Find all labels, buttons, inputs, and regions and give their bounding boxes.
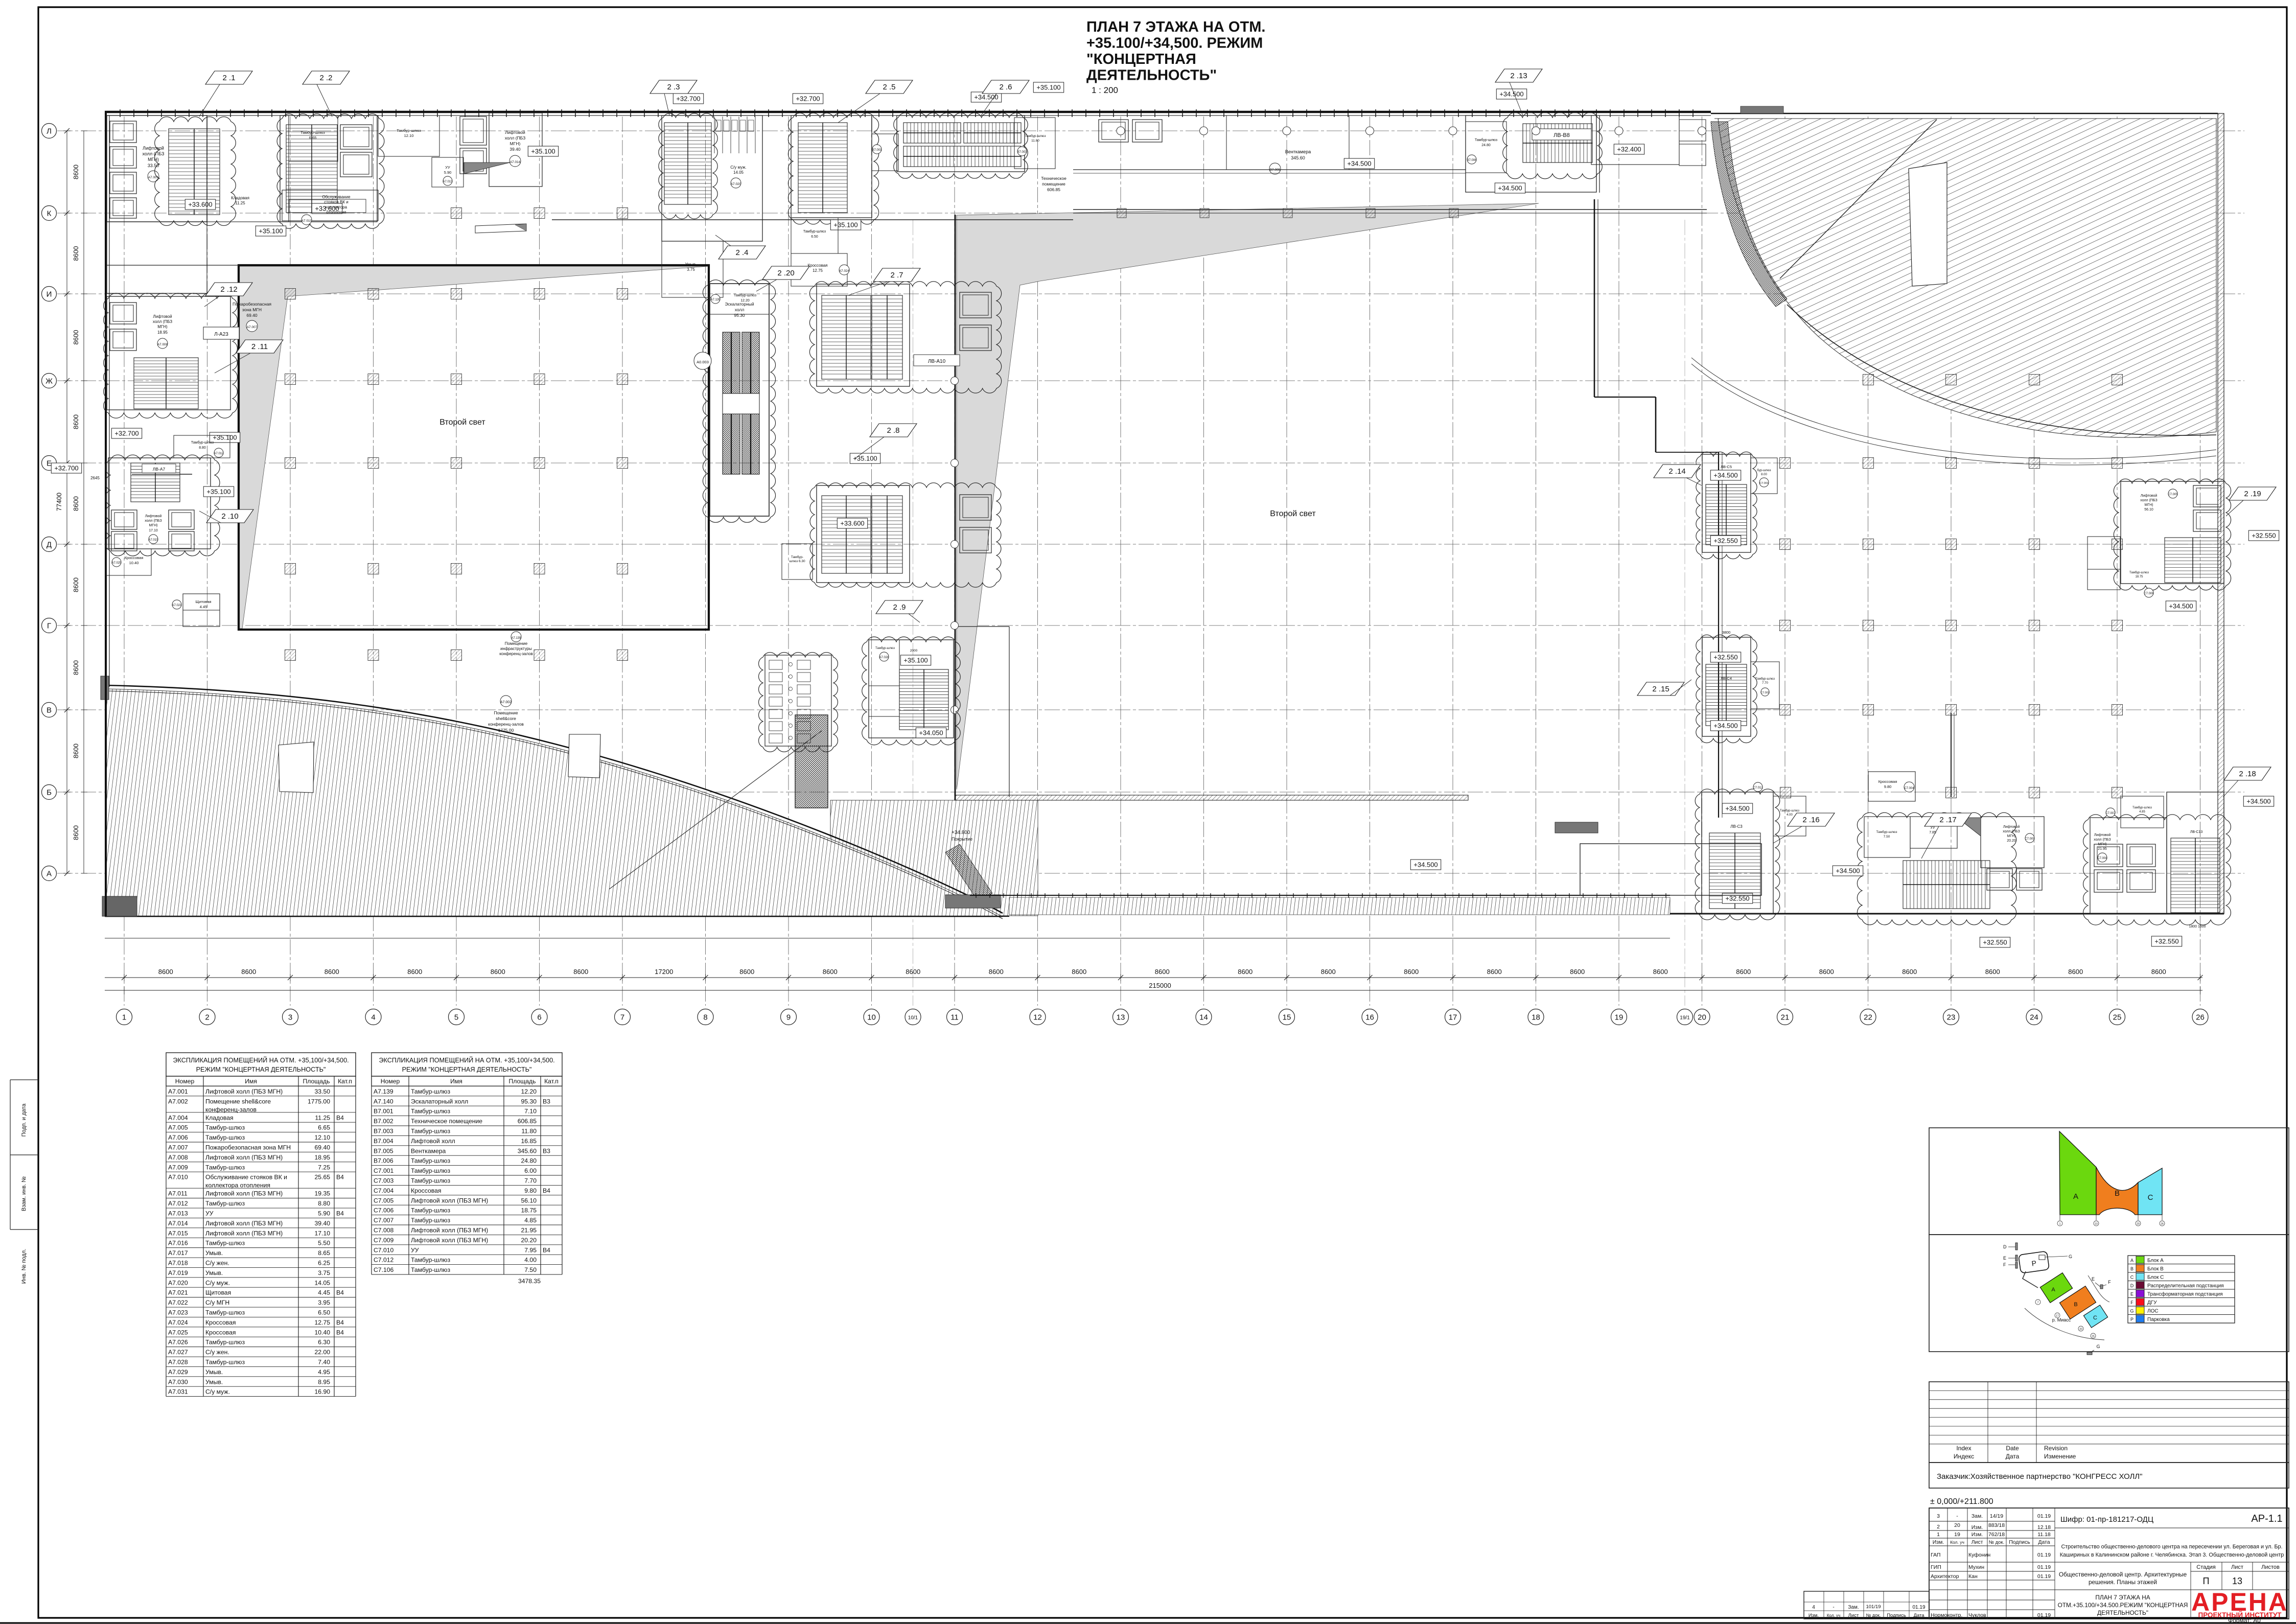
svg-text:А7.029: А7.029 [168, 1368, 188, 1376]
svg-text:E: E [2130, 1292, 2133, 1297]
svg-text:А7.005: А7.005 [168, 1124, 188, 1131]
svg-text:+33.600: +33.600 [840, 520, 864, 527]
svg-text:А7.024: А7.024 [839, 269, 850, 273]
svg-text:В7.006: В7.006 [374, 1157, 393, 1165]
svg-text:9: 9 [786, 1013, 791, 1022]
svg-text:20: 20 [1954, 1522, 1960, 1528]
svg-text:УУ: УУ [205, 1210, 214, 1217]
svg-text:+34.500: +34.500 [1713, 472, 1737, 479]
svg-text:2 .1: 2 .1 [222, 74, 235, 82]
svg-text:В3: В3 [543, 1147, 550, 1154]
svg-text:10: 10 [867, 1013, 876, 1022]
svg-text:А7.014: А7.014 [510, 160, 521, 164]
svg-text:решения. Планы этажей: решения. Планы этажей [2089, 1579, 2157, 1586]
svg-text:В7.004: В7.004 [374, 1138, 393, 1145]
svg-text:1775.00: 1775.00 [498, 728, 514, 733]
svg-text:+32.550: +32.550 [1713, 654, 1737, 661]
svg-text:Лифтовой холл (ПБЗ МГН): Лифтовой холл (ПБЗ МГН) [205, 1220, 283, 1227]
svg-text:7.70: 7.70 [524, 1177, 537, 1185]
svg-text:А7.002: А7.002 [500, 701, 512, 704]
svg-text:Тамбур-шлюз: Тамбур-шлюз [1475, 138, 1497, 142]
svg-text:8600: 8600 [158, 968, 173, 976]
svg-text:Строительство общественно-дело: Строительство общественно-делового центр… [2061, 1544, 2282, 1550]
svg-text:Кан: Кан [1968, 1573, 1978, 1580]
svg-text:ЛОС: ЛОС [2147, 1309, 2159, 1314]
svg-text:Кроссовая: Кроссовая [205, 1319, 236, 1326]
svg-text:Тамбур-шлюз: Тамбур-шлюз [411, 1257, 450, 1264]
svg-text:Тамбур-шлюз: Тамбур-шлюз [205, 1200, 245, 1207]
svg-text:А7.140: А7.140 [374, 1098, 393, 1105]
svg-text:4.45: 4.45 [200, 605, 207, 609]
svg-text:С/у жен.: С/у жен. [205, 1260, 229, 1267]
svg-text:1 : 200: 1 : 200 [1092, 85, 1118, 95]
svg-text:Лист: Лист [1848, 1613, 1859, 1618]
svg-text:6.30: 6.30 [318, 1339, 330, 1346]
svg-text:Index: Index [1956, 1445, 1971, 1452]
svg-text:конференц-залов: конференц-залов [499, 652, 533, 656]
svg-text:Date: Date [2006, 1445, 2019, 1452]
svg-text:Пожаробезопасная зона МГН: Пожаробезопасная зона МГН [205, 1144, 291, 1151]
svg-text:Тамбур-шлюз: Тамбур-шлюз [875, 647, 895, 650]
svg-text:2 .7: 2 .7 [890, 271, 903, 280]
svg-text:И: И [47, 290, 52, 299]
svg-text:С7.009: С7.009 [2025, 838, 2035, 841]
svg-text:ЛВ-А7: ЛВ-А7 [153, 467, 166, 472]
svg-text:Подпись: Подпись [2009, 1539, 2030, 1545]
svg-text:В7.006: В7.006 [1467, 159, 1477, 162]
svg-text:E: E [2092, 1277, 2095, 1282]
svg-text:B: B [2130, 1266, 2133, 1271]
svg-text:А7.020: А7.020 [168, 1279, 188, 1286]
svg-text:В4: В4 [336, 1329, 344, 1336]
svg-text:А7.014: А7.014 [168, 1220, 188, 1227]
svg-text:Умыв.: Умыв. [205, 1368, 223, 1376]
svg-text:С7.001: С7.001 [1759, 482, 1769, 485]
svg-text:12.10: 12.10 [315, 1134, 331, 1141]
svg-text:345.60: 345.60 [518, 1147, 537, 1154]
svg-text:2 .10: 2 .10 [221, 512, 238, 521]
svg-text:Кладовая: Кладовая [205, 1114, 234, 1121]
svg-text:Дата: Дата [2006, 1453, 2020, 1460]
svg-text:конференц-залов: конференц-залов [205, 1106, 257, 1113]
svg-text:Лифтовой холл (ПБЗ МГН): Лифтовой холл (ПБЗ МГН) [205, 1154, 283, 1161]
svg-text:А7.021: А7.021 [168, 1289, 188, 1296]
svg-text:8: 8 [703, 1013, 707, 1022]
svg-text:Лифтовой холл (ПБЗ МГН): Лифтовой холл (ПБЗ МГН) [205, 1229, 283, 1237]
svg-text:Б: Б [47, 788, 52, 797]
svg-text:33.50: 33.50 [315, 1088, 331, 1095]
svg-text:shell&core: shell&core [496, 716, 516, 721]
svg-text:Тамбур-шлюз: Тамбур-шлюз [411, 1167, 450, 1174]
svg-text:Л-А23: Л-А23 [214, 332, 228, 337]
svg-text:Кладовая: Кладовая [231, 196, 249, 200]
svg-text:+34.500: +34.500 [1498, 184, 1522, 192]
svg-text:С7.008: С7.008 [2097, 857, 2107, 860]
svg-text:4.00: 4.00 [524, 1257, 537, 1264]
svg-text:ЭКСПЛИКАЦИЯ ПОМЕЩЕНИЙ НА ОТМ.: ЭКСПЛИКАЦИЯ ПОМЕЩЕНИЙ НА ОТМ. +35,100/+3… [173, 1056, 349, 1064]
svg-text:69.40: 69.40 [246, 313, 258, 318]
svg-text:Кат.п: Кат.п [338, 1078, 352, 1085]
svg-text:Изм.: Изм. [1933, 1539, 1944, 1545]
svg-text:17.10: 17.10 [149, 529, 158, 532]
svg-text:В7.005: В7.005 [374, 1147, 393, 1154]
svg-text:1: 1 [122, 1013, 126, 1022]
svg-text:+34.500: +34.500 [2246, 798, 2270, 805]
svg-text:Щитовая: Щитовая [196, 599, 212, 604]
svg-text:А7.010: А7.010 [302, 219, 312, 223]
svg-text:12.75: 12.75 [813, 268, 823, 273]
svg-text:8600: 8600 [1985, 968, 2000, 976]
svg-text:+34.500: +34.500 [2169, 602, 2193, 610]
svg-text:22.00: 22.00 [315, 1349, 331, 1356]
svg-text:Нормоконтр.: Нормоконтр. [1931, 1612, 1962, 1618]
svg-text:2 .8: 2 .8 [887, 426, 899, 435]
svg-text:56.10: 56.10 [521, 1197, 537, 1204]
svg-text:коллектора: коллектора [326, 205, 347, 210]
svg-text:9.80: 9.80 [524, 1187, 537, 1194]
svg-text:Щитовая: Щитовая [205, 1289, 231, 1296]
svg-text:2000: 2000 [910, 649, 918, 653]
svg-text:Пожаробезопасная: Пожаробезопасная [233, 301, 271, 307]
svg-text:ЛВ-С4: ЛВ-С4 [1721, 676, 1732, 681]
svg-text:7: 7 [620, 1013, 624, 1022]
svg-text:Кашириных в Калининском районе: Кашириных в Калининском районе г. Челяби… [2060, 1552, 2284, 1558]
svg-text:Лифтовой: Лифтовой [505, 130, 525, 135]
svg-text:Шифр: 01-пр-181217-ОДЦ: Шифр: 01-пр-181217-ОДЦ [2060, 1515, 2153, 1524]
svg-text:+32.550: +32.550 [1713, 537, 1737, 545]
svg-text:17.10: 17.10 [315, 1229, 331, 1237]
svg-text:А7.015: А7.015 [168, 1229, 188, 1237]
svg-text:холл (ПБЗ: холл (ПБЗ [143, 151, 165, 156]
svg-text:E: E [2003, 1256, 2006, 1261]
svg-text:39.40: 39.40 [315, 1220, 331, 1227]
svg-text:С7.007: С7.007 [2105, 812, 2116, 815]
svg-text:С7.003: С7.003 [1760, 691, 1770, 694]
svg-text:Тамбур-шлюз: Тамбур-шлюз [411, 1157, 450, 1165]
svg-text:С7.007: С7.007 [374, 1217, 394, 1224]
svg-text:Лифтовой холл (ПБЗ МГН): Лифтовой холл (ПБЗ МГН) [411, 1197, 488, 1204]
svg-text:А7.002: А7.002 [168, 1098, 188, 1105]
svg-text:А7.001: А7.001 [148, 176, 159, 179]
svg-text:Тамбур-шлюз: Тамбур-шлюз [1025, 134, 1046, 138]
svg-text:A: A [2051, 1287, 2055, 1293]
svg-text:Лифтовой: Лифтовой [153, 314, 172, 319]
svg-text:ГАП: ГАП [1931, 1552, 1940, 1558]
svg-text:+34.500: +34.500 [1713, 722, 1737, 730]
svg-text:8600: 8600 [1404, 968, 1419, 976]
svg-text:Умыв.: Умыв. [205, 1269, 223, 1277]
svg-text:8600: 8600 [72, 825, 80, 840]
svg-text:01.19: 01.19 [2037, 1612, 2051, 1618]
svg-text:39.40: 39.40 [509, 147, 521, 152]
svg-text:шлюз 6.30: шлюз 6.30 [789, 560, 805, 563]
svg-text:2 .18: 2 .18 [2239, 770, 2256, 778]
svg-text:С7.012: С7.012 [374, 1257, 394, 1264]
svg-text:ГИП: ГИП [1931, 1564, 1941, 1570]
svg-text:F: F [2108, 1280, 2111, 1285]
svg-text:+35.100: +35.100 [903, 657, 927, 664]
svg-text:Кроссовая: Кроссовая [807, 263, 827, 268]
svg-text:14: 14 [1199, 1013, 1208, 1022]
svg-text:A: A [2073, 1192, 2078, 1201]
svg-text:Обслуживание: Обслуживание [322, 195, 351, 199]
svg-text:Заказчик:Хозяйственное партнер: Заказчик:Хозяйственное партнерство "КОНГ… [1937, 1472, 2142, 1481]
svg-text:18: 18 [1532, 1013, 1540, 1022]
svg-text:А7.013: А7.013 [168, 1210, 188, 1217]
svg-text:А7.018: А7.018 [168, 1260, 188, 1267]
svg-text:15: 15 [1283, 1013, 1291, 1022]
svg-text:B: B [2074, 1302, 2077, 1308]
svg-text:холл (ПБЗ: холл (ПБЗ [153, 319, 172, 324]
svg-text:3: 3 [1937, 1513, 1940, 1519]
svg-text:23: 23 [1947, 1013, 1956, 1022]
svg-text:Тамбур-шлюз: Тамбур-шлюз [411, 1108, 450, 1115]
svg-text:В7.002: В7.002 [374, 1118, 393, 1125]
svg-text:Тамбур-: Тамбур- [791, 555, 803, 559]
svg-text:8600: 8600 [72, 496, 80, 511]
svg-text:Ж: Ж [45, 377, 53, 386]
svg-text:Техническое помещение: Техническое помещение [411, 1118, 482, 1125]
svg-text:А7.020: А7.020 [731, 182, 741, 186]
svg-text:А7.016: А7.016 [168, 1240, 188, 1247]
svg-text:2 .13: 2 .13 [1510, 72, 1527, 80]
svg-text:+32.550: +32.550 [2252, 532, 2276, 540]
svg-text:+35.100/+34,500. РЕЖИМ: +35.100/+34,500. РЕЖИМ [1086, 35, 1263, 52]
svg-text:21: 21 [1781, 1013, 1790, 1022]
svg-text:16: 16 [1365, 1013, 1374, 1022]
svg-text:8600: 8600 [72, 165, 80, 179]
svg-text:A: A [2130, 1258, 2133, 1263]
svg-text:6.00: 6.00 [524, 1167, 537, 1174]
svg-text:18.75: 18.75 [521, 1207, 537, 1214]
svg-text:Лифтовой: Лифтовой [2094, 833, 2111, 837]
svg-text:883/18: 883/18 [1988, 1522, 2005, 1528]
svg-text:холл (ПБЗ: холл (ПБЗ [2140, 499, 2157, 502]
svg-text:101/19: 101/19 [1866, 1604, 1881, 1610]
svg-text:А7.022: А7.022 [168, 1299, 188, 1306]
svg-text:Архитектор: Архитектор [1931, 1573, 1959, 1580]
svg-text:+33.600: +33.600 [188, 201, 212, 208]
svg-text:Техническое: Техническое [1041, 176, 1066, 181]
svg-text:Индекс: Индекс [1954, 1453, 1974, 1460]
svg-text:А7.019: А7.019 [168, 1269, 188, 1277]
svg-text:А7.007: А7.007 [247, 326, 258, 329]
svg-text:21.95: 21.95 [2098, 847, 2107, 851]
svg-text:Зам.: Зам. [1848, 1605, 1859, 1610]
svg-text:Лифтовой: Лифтовой [145, 514, 162, 518]
svg-text:РЕЖИМ "КОНЦЕРТНАЯ ДЕЯТЕЛЬНОСТЬ: РЕЖИМ "КОНЦЕРТНАЯ ДЕЯТЕЛЬНОСТЬ" [402, 1066, 532, 1073]
svg-text:C: C [2093, 1315, 2097, 1321]
svg-text:95.30: 95.30 [521, 1098, 537, 1105]
svg-text:8600: 8600 [1819, 968, 1834, 976]
svg-text:РЕЖИМ "КОНЦЕРТНАЯ ДЕЯТЕЛЬНОСТЬ: РЕЖИМ "КОНЦЕРТНАЯ ДЕЯТЕЛЬНОСТЬ" [196, 1066, 326, 1073]
svg-text:14/19: 14/19 [1990, 1513, 2003, 1519]
svg-text:Второй свет: Второй свет [439, 418, 485, 427]
svg-text:11.18: 11.18 [2037, 1532, 2051, 1538]
svg-text:Площадь: Площадь [508, 1078, 536, 1085]
svg-text:8600: 8600 [72, 330, 80, 345]
svg-text:11: 11 [950, 1013, 959, 1022]
svg-text:8600: 8600 [491, 968, 505, 976]
svg-text:холл (ПБЗ: холл (ПБЗ [2003, 830, 2020, 833]
svg-text:8600: 8600 [1487, 968, 1502, 976]
svg-text:13: 13 [1117, 1013, 1125, 1022]
svg-text:69.40: 69.40 [315, 1144, 331, 1151]
svg-text:2 .14: 2 .14 [1668, 467, 1685, 476]
svg-text:Revision: Revision [2044, 1445, 2068, 1452]
svg-text:+34.500: +34.500 [1347, 160, 1371, 168]
svg-text:Изм.: Изм. [1808, 1613, 1819, 1618]
svg-text:8600: 8600 [2151, 968, 2166, 976]
svg-text:+35.100: +35.100 [206, 488, 230, 496]
svg-text:Дата: Дата [1913, 1613, 1924, 1618]
svg-text:762/18: 762/18 [1988, 1532, 2005, 1538]
svg-text:20.20: 20.20 [521, 1237, 537, 1244]
svg-text:1: 1 [2059, 1223, 2060, 1226]
svg-text:В: В [47, 706, 52, 715]
svg-text:МГН): МГН) [510, 141, 521, 146]
svg-text:МГН): МГН) [2007, 834, 2015, 838]
svg-text:конференц-залов: конференц-залов [488, 722, 524, 727]
svg-text:Номер: Номер [381, 1078, 400, 1085]
svg-text:4.45: 4.45 [318, 1289, 330, 1296]
svg-text:17: 17 [1449, 1013, 1457, 1022]
svg-text:холл: холл [735, 307, 745, 312]
svg-text:Номер: Номер [175, 1078, 195, 1085]
svg-text:14.05: 14.05 [315, 1279, 331, 1286]
svg-text:С7.003: С7.003 [374, 1177, 394, 1185]
svg-text:8600: 8600 [241, 968, 256, 976]
svg-text:Блок С: Блок С [2147, 1275, 2164, 1281]
svg-text:зона МГН: зона МГН [242, 307, 262, 312]
svg-text:С7.009: С7.009 [374, 1237, 394, 1244]
svg-text:+34.500: +34.500 [1499, 90, 1523, 98]
svg-text:3.75: 3.75 [687, 267, 695, 272]
svg-text:Кол. уч: Кол. уч [1827, 1613, 1840, 1618]
svg-text:К: К [47, 210, 52, 218]
svg-text:2: 2 [1937, 1524, 1940, 1530]
svg-text:D: D [2003, 1244, 2007, 1249]
svg-text:В3: В3 [543, 1098, 550, 1105]
svg-text:D: D [2130, 1283, 2134, 1288]
svg-text:7.10: 7.10 [524, 1108, 537, 1115]
svg-text:Листов: Листов [2261, 1564, 2280, 1570]
svg-text:2645: 2645 [90, 476, 100, 480]
svg-text:Имя: Имя [450, 1078, 462, 1085]
svg-text:Обслуживание стояков ВК и: Обслуживание стояков ВК и [205, 1174, 287, 1181]
svg-text:24: 24 [2030, 1013, 2038, 1022]
svg-text:ДЕЯТЕЛЬНОСТЬ": ДЕЯТЕЛЬНОСТЬ" [2097, 1609, 2148, 1616]
svg-text:А7.028: А7.028 [168, 1359, 188, 1366]
svg-text:Кат.п: Кат.п [544, 1078, 559, 1085]
svg-text:МГН): МГН) [148, 157, 159, 162]
svg-text:+34.500: +34.500 [974, 94, 998, 101]
svg-text:бур-шлюз: бур-шлюз [1757, 469, 1771, 472]
svg-text:8.80: 8.80 [318, 1200, 330, 1207]
svg-text:Стадия: Стадия [2196, 1564, 2216, 1570]
svg-text:B: B [2115, 1189, 2120, 1198]
svg-text:3.95: 3.95 [318, 1299, 330, 1306]
svg-text:21.95: 21.95 [521, 1227, 537, 1234]
svg-text:С7.008: С7.008 [374, 1227, 394, 1234]
svg-text:А7.008: А7.008 [157, 343, 168, 346]
svg-text:2 .16: 2 .16 [1802, 816, 1819, 824]
svg-text:01.19: 01.19 [1912, 1605, 1925, 1610]
svg-text:Тамбур-шлюз: Тамбур-шлюз [205, 1124, 245, 1131]
svg-text:А7.013: А7.013 [443, 180, 453, 183]
svg-text:Тамбур-шлюз: Тамбур-шлюз [2129, 571, 2149, 574]
svg-text:26: 26 [2196, 1013, 2205, 1022]
svg-text:В7.003: В7.003 [1017, 151, 1027, 154]
svg-text:С7.006: С7.006 [374, 1207, 394, 1214]
svg-text:УУ: УУ [445, 165, 450, 170]
svg-text:1800 1600: 1800 1600 [2189, 925, 2206, 929]
svg-text:11.80: 11.80 [521, 1128, 537, 1135]
svg-text:Покрытие: Покрытие [952, 837, 972, 842]
svg-text:2 .2: 2 .2 [319, 74, 332, 82]
svg-text:7.70: 7.70 [1762, 682, 1768, 685]
svg-text:24.80: 24.80 [521, 1157, 537, 1165]
svg-text:Умыв.: Умыв. [205, 1378, 223, 1385]
svg-text:Подп. и дата: Подп. и дата [21, 1103, 27, 1137]
svg-text:2 .3: 2 .3 [667, 83, 680, 91]
svg-text:С/у муж.: С/у муж. [205, 1279, 230, 1286]
svg-text:19/1: 19/1 [1680, 1015, 1690, 1021]
svg-text:А7.015: А7.015 [148, 539, 158, 542]
svg-text:+34.800: +34.800 [952, 830, 970, 836]
svg-text:4.85: 4.85 [2139, 810, 2145, 814]
svg-text:В7.003: В7.003 [374, 1128, 393, 1135]
svg-text:6.65: 6.65 [309, 135, 317, 140]
svg-text:2 .17: 2 .17 [1939, 816, 1956, 824]
svg-text:+34.500: +34.500 [1725, 805, 1749, 813]
svg-text:№ док.: № док. [1866, 1613, 1881, 1618]
svg-text:Лист: Лист [1972, 1539, 1983, 1545]
svg-text:+32.700: +32.700 [114, 430, 138, 437]
svg-text:7.95: 7.95 [524, 1246, 537, 1254]
svg-text:В4: В4 [336, 1289, 344, 1296]
svg-text:12.75: 12.75 [315, 1319, 331, 1326]
svg-text:8.95: 8.95 [318, 1378, 330, 1385]
svg-text:С7.004: С7.004 [374, 1187, 394, 1194]
svg-text:F: F [2003, 1262, 2006, 1267]
svg-text:8600: 8600 [1570, 968, 1585, 976]
svg-text:Распределительная подстанция: Распределительная подстанция [2147, 1283, 2224, 1289]
svg-text:-: - [1956, 1513, 1958, 1519]
svg-text:Тамбур-шлюз: Тамбур-шлюз [191, 440, 214, 445]
svg-text:Тамбур-шлюз: Тамбур-шлюз [205, 1339, 245, 1346]
svg-text:Куфонин: Куфонин [1968, 1552, 1990, 1558]
svg-text:17: 17 [2056, 1315, 2059, 1318]
svg-text:Лист: Лист [2231, 1564, 2243, 1570]
svg-text:А7.031: А7.031 [168, 1388, 188, 1396]
svg-text:Е: Е [47, 459, 52, 468]
svg-text:2: 2 [205, 1013, 209, 1022]
svg-text:G: G [2096, 1344, 2100, 1349]
svg-text:8600: 8600 [1072, 968, 1086, 976]
svg-text:Инв. № подл.: Инв. № подл. [21, 1249, 27, 1284]
svg-text:МГН): МГН) [2144, 503, 2153, 507]
svg-text:C: C [2130, 1275, 2134, 1280]
svg-text:+34.500: +34.500 [1413, 861, 1437, 869]
svg-text:Эскалаторный холл: Эскалаторный холл [411, 1098, 468, 1105]
svg-text:А7.139: А7.139 [511, 637, 521, 640]
svg-text:Умыв.: Умыв. [205, 1249, 223, 1257]
svg-text:3800: 3800 [1722, 630, 1731, 635]
svg-text:8600: 8600 [324, 968, 339, 976]
svg-text:Тамбур-шлюз: Тамбур-шлюз [205, 1134, 245, 1141]
svg-text:Кроссовая: Кроссовая [125, 555, 144, 560]
